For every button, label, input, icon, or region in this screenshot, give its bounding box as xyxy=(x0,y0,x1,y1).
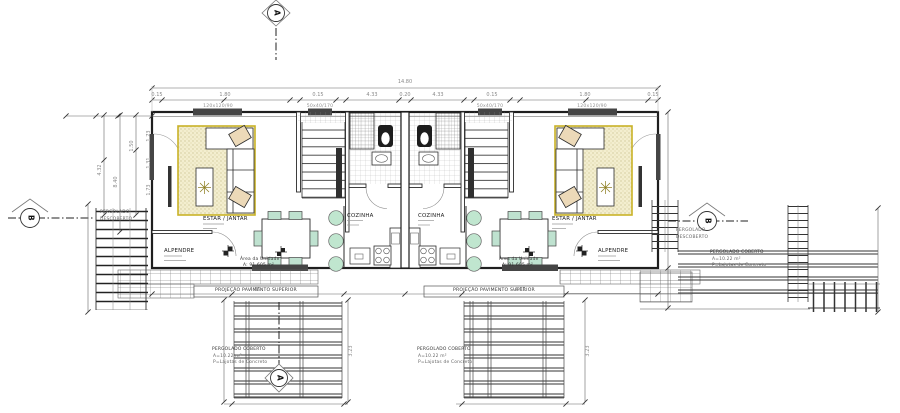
pergola-uncovered-label-left-1: PERGOLADO xyxy=(100,210,130,215)
dim-left-vertical: 8.40 xyxy=(114,176,120,187)
pergola-covered-bottom-center xyxy=(464,301,564,398)
dim-segment: 0.15 xyxy=(312,93,323,99)
section-letter-b-left: B xyxy=(26,215,35,221)
room-label-estar-jantar-left: ESTAR / JANTAR xyxy=(203,216,248,222)
room-label-cozinha-right: COZINHA xyxy=(418,213,444,219)
projection-label-right: PROJEÇÃO PAVIMENTO SUPERIOR xyxy=(424,288,564,293)
pergola-covered-floor-right: P=Lajotas de Concreto xyxy=(712,263,766,268)
dim-bottom-left: 4.85 xyxy=(249,288,260,294)
dim-left-vertical: 1.50 xyxy=(130,140,136,151)
pergola-covered-area-right: A=10.22 m² xyxy=(712,257,741,262)
dim-segment: 1.80 xyxy=(579,93,590,99)
dim-segment: 0.15 xyxy=(647,93,658,99)
dim-interior-vertical: 1.31 xyxy=(147,157,153,168)
window-tag-large-right: 120x120/90 xyxy=(577,104,607,109)
dim-pergola-height-left: 3.23 xyxy=(349,345,355,356)
dim-segment: 4.33 xyxy=(432,93,443,99)
pergola-covered-area-bottom-left: A=10.22 m² xyxy=(213,354,242,359)
building xyxy=(150,109,661,272)
section-letter-a-bottom: A xyxy=(275,375,284,381)
pergola-right-complex xyxy=(652,200,880,312)
dim-pergola-height-center: 3.23 xyxy=(586,345,592,356)
pergola-covered-floor-bottom-left: P=Lajotas de Concreto xyxy=(213,360,267,365)
section-letter-b-right: B xyxy=(703,218,712,224)
pergola-covered-title-bottom-center: PERGOLADO COBERTO xyxy=(417,347,471,352)
window-tag-small-right: 50x40/170 xyxy=(477,104,504,109)
window-tag-large-left: 120x120/90 xyxy=(203,104,233,109)
section-marker-b-right xyxy=(668,203,748,231)
room-label-alpendre-left: ALPENDRE xyxy=(164,248,194,254)
room-label-alpendre-right: ALPENDRE xyxy=(598,248,628,254)
pergola-covered-title-right: PERGOLADO COBERTO xyxy=(710,250,764,255)
dim-total-width: 14.80 xyxy=(398,80,412,86)
room-label-cozinha-left: COZINHA xyxy=(347,213,373,219)
pergola-covered-area-bottom-center: A=10.22 m² xyxy=(418,354,447,359)
dim-left-vertical: 4.32 xyxy=(98,164,104,175)
section-letter-a-top: A xyxy=(272,10,281,16)
dim-segment: 4.33 xyxy=(366,93,377,99)
unit-area-value-right: A: 91.605 m² xyxy=(502,263,533,268)
unit-area-label-left: Área da Unidade xyxy=(240,257,280,262)
pergola-covered-title-bottom-left: PERGOLADO COBERTO xyxy=(212,347,266,352)
dim-segment: 1.80 xyxy=(219,93,230,99)
pergola-uncovered-label-left-2: DESCOBERTO xyxy=(100,217,132,222)
section-marker-b-left xyxy=(8,199,94,228)
dim-segment: 0.15 xyxy=(151,93,162,99)
dim-interior-vertical: 1.73 xyxy=(147,184,153,195)
pergola-uncovered-label-right-2: DESCOBERTO xyxy=(676,235,708,240)
pergola-uncovered-label-right-1: PERGOLADO xyxy=(676,228,706,233)
pergola-left-uncovered xyxy=(96,208,148,310)
dim-interior-vertical: 1.73 xyxy=(147,130,153,141)
dim-segment: 0.15 xyxy=(486,93,497,99)
pergola-covered-floor-bottom-center: P=Lajotas de Concreto xyxy=(418,360,472,365)
window-tag-small-left: 50x40/170 xyxy=(307,104,334,109)
dim-bottom-right: 4.85 xyxy=(514,288,525,294)
unit-area-value-left: A: 91.605 m² xyxy=(243,263,274,268)
unit-area-label-right: Área da Unidade xyxy=(499,257,539,262)
dim-segment: 0.20 xyxy=(399,93,410,99)
floor-plan: 14.80 0.15 1.80 0.15 4.33 0.20 4.33 0.15… xyxy=(0,0,900,413)
room-label-estar-jantar-right: ESTAR / JANTAR xyxy=(552,216,597,222)
